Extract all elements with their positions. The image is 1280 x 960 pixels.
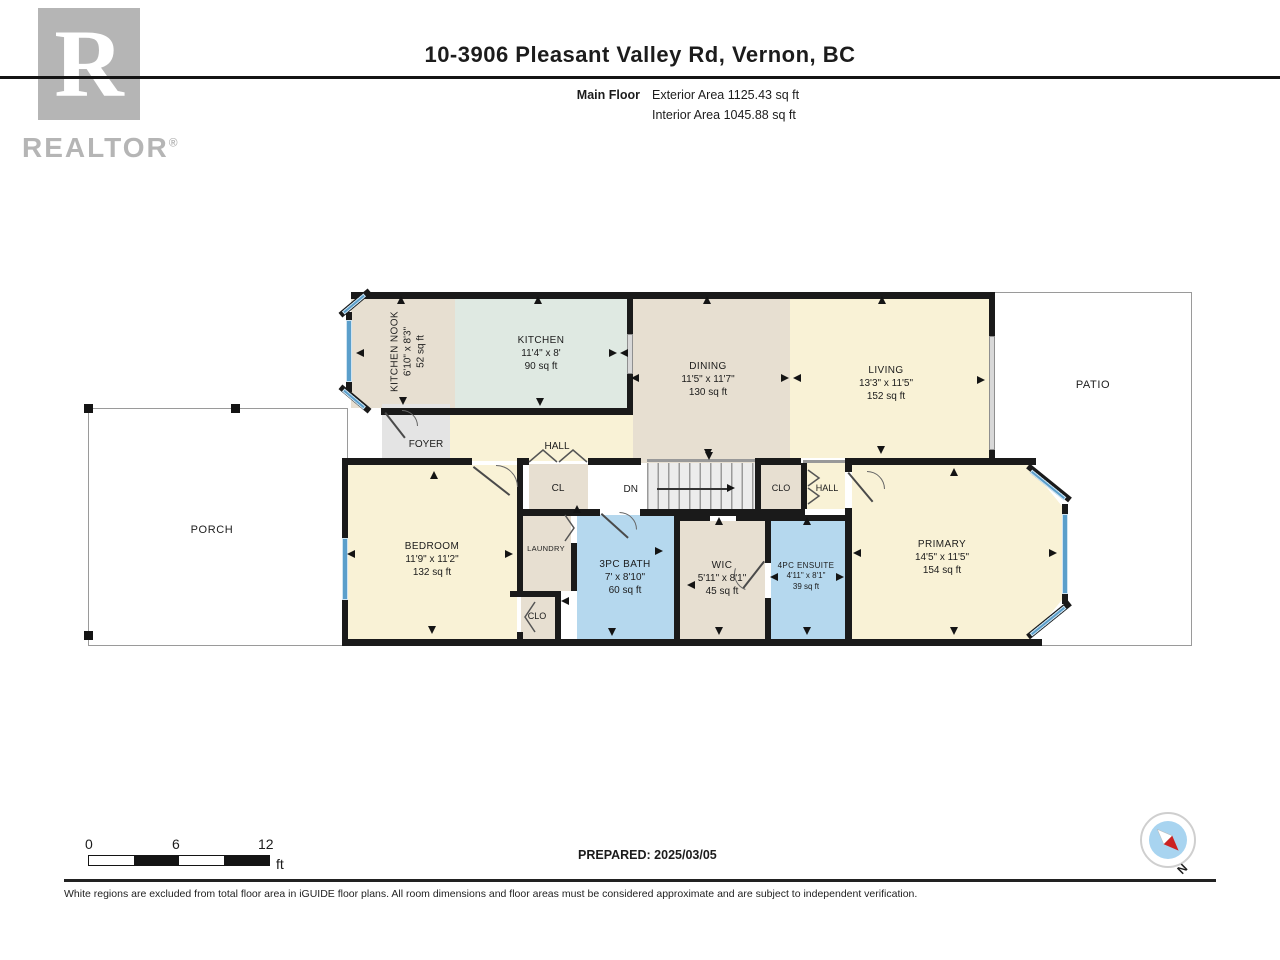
wall-segment <box>845 458 1036 465</box>
scale-unit: ft <box>276 856 284 872</box>
scale-segment <box>89 856 134 865</box>
wall-segment <box>588 458 641 465</box>
camera-arrow-icon <box>356 349 364 357</box>
camera-arrow-icon <box>536 398 544 406</box>
wall-segment <box>845 458 852 472</box>
compass-north-label: N <box>1174 861 1190 877</box>
realtor-logo: R <box>38 8 140 120</box>
title-rule <box>0 76 1280 79</box>
camera-arrow-icon <box>853 549 861 557</box>
interior-area: Interior Area 1045.88 sq ft <box>652 108 796 122</box>
camera-arrow-icon <box>573 505 581 513</box>
exterior-area: Exterior Area 1125.43 sq ft <box>652 88 799 102</box>
stairs-rail <box>647 459 755 462</box>
disclaimer-text: White regions are excluded from total fl… <box>64 888 917 900</box>
scale-bar <box>88 855 270 866</box>
stairs-direction-line <box>657 488 729 490</box>
camera-arrow-icon <box>977 376 985 384</box>
ensuite-label: 4PC ENSUITE 4'11" x 8'1" 39 sq ft <box>758 561 854 592</box>
camera-arrow-icon <box>608 628 616 636</box>
camera-arrow-icon <box>705 452 713 460</box>
kitchen-label: KITCHEN 11'4" x 8' 90 sq ft <box>481 334 601 373</box>
kitchen-nook-label: KITCHEN NOOK 6'10" x 8'3" 52 sq ft <box>389 292 428 412</box>
window-marker <box>342 538 348 600</box>
camera-arrow-icon <box>950 627 958 635</box>
hall-rail <box>803 460 845 463</box>
scale-tick-6: 6 <box>172 836 180 852</box>
dining-label: DINING 11'5" x 11'7" 130 sq ft <box>648 360 768 399</box>
page-title: 10-3906 Pleasant Valley Rd, Vernon, BC <box>0 42 1280 68</box>
foyer-label: FOYER <box>391 438 461 451</box>
camera-arrow-icon <box>877 446 885 454</box>
camera-arrow-icon <box>428 626 436 634</box>
wall-segment <box>342 458 472 465</box>
bifold-door-icon <box>563 513 577 543</box>
bedroom-closet-label: CLO <box>502 611 572 623</box>
realtor-wordmark: REALTOR® <box>22 132 180 164</box>
compass-face <box>1149 821 1187 859</box>
wall-segment <box>989 292 995 336</box>
camera-arrow-icon <box>715 627 723 635</box>
window-marker <box>346 320 352 382</box>
hall-closet-label: CL <box>523 482 593 495</box>
footer-rule <box>64 879 1216 882</box>
compass-needle-icon <box>1144 816 1192 864</box>
realtor-r-icon: R <box>54 16 123 112</box>
camera-arrow-icon <box>655 547 663 555</box>
camera-arrow-icon <box>803 517 811 525</box>
prepared-date: PREPARED: 2025/03/05 <box>578 848 717 862</box>
camera-arrow-icon <box>1049 549 1057 557</box>
camera-arrow-icon <box>803 627 811 635</box>
porch-post <box>84 631 93 640</box>
wall-segment <box>351 292 995 299</box>
wall-segment <box>765 598 771 645</box>
hall-right-label: HALL <box>792 483 862 495</box>
compass-icon <box>1140 812 1196 868</box>
camera-arrow-icon <box>534 296 542 304</box>
scale-tick-12: 12 <box>258 836 274 852</box>
registered-mark: ® <box>169 136 180 150</box>
wall-segment <box>736 515 765 521</box>
wall-segment <box>510 591 561 597</box>
camera-arrow-icon <box>878 296 886 304</box>
scale-tick-0: 0 <box>85 836 93 852</box>
scale-segment <box>224 856 269 865</box>
stairs-dn-label: DN <box>598 483 638 496</box>
stairs-direction-arrow-icon <box>727 484 735 492</box>
camera-arrow-icon <box>620 349 628 357</box>
porch-post <box>84 404 93 413</box>
wall-segment <box>674 515 710 521</box>
wall-segment <box>755 458 801 465</box>
scale-segment <box>134 856 179 865</box>
hall-upper-label: HALL <box>522 440 592 453</box>
camera-arrow-icon <box>793 374 801 382</box>
camera-arrow-icon <box>950 468 958 476</box>
camera-arrow-icon <box>609 349 617 357</box>
camera-arrow-icon <box>703 296 711 304</box>
wall-segment <box>517 509 600 516</box>
stairs-down <box>647 463 755 509</box>
patio-label: PATIO <box>1033 378 1153 392</box>
window-marker <box>1062 514 1068 594</box>
patio-slider-door <box>989 336 995 450</box>
floor-plan-page: R REALTOR® 10-3906 Pleasant Valley Rd, V… <box>0 0 1280 960</box>
laundry-label: LAUNDRY <box>511 544 581 554</box>
living-label: LIVING 13'3" x 11'5" 152 sq ft <box>826 364 946 403</box>
wall-segment <box>1062 504 1068 514</box>
scale-segment <box>179 856 224 865</box>
wall-segment <box>765 521 771 563</box>
camera-arrow-icon <box>781 374 789 382</box>
bedroom-label: BEDROOM 11'9" x 11'2" 132 sq ft <box>372 540 492 579</box>
wall-segment <box>342 639 1042 646</box>
porch-label: PORCH <box>152 523 272 537</box>
camera-arrow-icon <box>347 550 355 558</box>
floor-label: Main Floor <box>500 88 640 102</box>
wall-segment <box>1062 594 1068 604</box>
camera-arrow-icon <box>430 471 438 479</box>
primary-label: PRIMARY 14'5" x 11'5" 154 sq ft <box>882 538 1002 577</box>
camera-arrow-icon <box>631 374 639 382</box>
camera-arrow-icon <box>715 517 723 525</box>
porch-post <box>231 404 240 413</box>
camera-arrow-icon <box>561 597 569 605</box>
